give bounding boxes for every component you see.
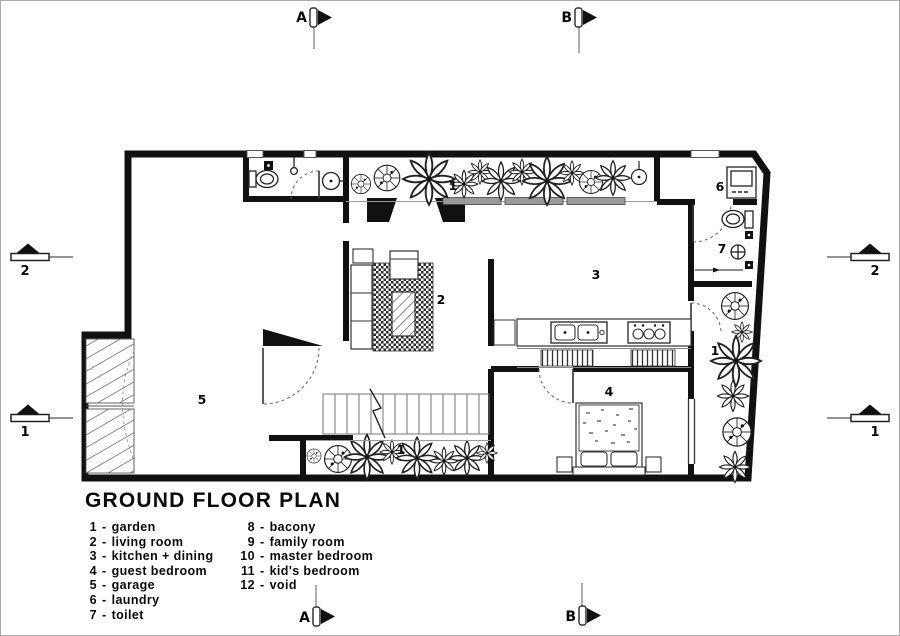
room-label-living-room: 2 (437, 292, 446, 307)
nightstand (557, 457, 572, 472)
legend-item: 11-kid's bedroom (233, 564, 373, 579)
svg-text:B: B (561, 10, 572, 26)
section-marker-b-top: B (561, 8, 597, 53)
legend-item: 6-laundry (85, 593, 233, 608)
room-label-laundry: 6 (716, 179, 725, 194)
room-label-kitchen-dining: 3 (592, 267, 601, 282)
elevation-arrow-icon (858, 405, 882, 415)
legend-item: 9-family room (233, 535, 373, 550)
svg-text:B: B (565, 609, 576, 625)
page-title: GROUND FLOOR PLAN (85, 489, 373, 513)
legend-item: 8-bacony (233, 520, 373, 535)
elevation-arrow-icon (16, 405, 40, 415)
room-label-garage: 5 (198, 392, 207, 407)
legend-item: 7-toilet (85, 608, 233, 623)
kitchen-counter (494, 319, 691, 346)
elevation-marker-1-right: 1 (827, 405, 889, 441)
coffee-table (392, 292, 415, 336)
armchair (390, 251, 418, 279)
section-arrow-icon (318, 10, 332, 25)
nightstand (646, 457, 661, 472)
section-arrow-icon (587, 608, 601, 623)
garage-door (86, 339, 134, 473)
legend-item: 4-guest bedroom (85, 564, 233, 579)
elevation-marker-1-left: 1 (11, 405, 73, 441)
svg-text:A: A (296, 10, 307, 26)
legend-column-2: 8-bacony 9-family room 10-master bedroom… (233, 520, 373, 622)
legend-column-1: 1-garden 2-living room 3-kitchen + dinin… (85, 520, 233, 622)
sofa-set (351, 249, 433, 351)
sofa (351, 265, 372, 349)
legend-item: 12-void (233, 578, 373, 593)
room-label-toilet: 7 (718, 241, 727, 256)
section-arrow-icon (583, 10, 597, 25)
svg-text:1: 1 (870, 425, 879, 440)
svg-text:2: 2 (20, 264, 29, 279)
legend-item: 2-living room (85, 535, 233, 550)
bed (557, 403, 661, 475)
legend-item: 10-master bedroom (233, 549, 373, 564)
section-marker-b-bottom: B (565, 583, 601, 625)
legend: GROUND FLOOR PLAN 1-garden 2-living room… (85, 489, 373, 622)
room-label-guest-bedroom: 4 (605, 384, 614, 399)
pillow (611, 452, 637, 466)
svg-text:2: 2 (870, 264, 879, 279)
stove-icon (628, 322, 670, 343)
elevation-marker-2-left: 2 (11, 244, 73, 280)
side-table (353, 249, 373, 263)
room-label-garden-top: 1 (449, 178, 458, 193)
section-marker-a-top: A (296, 8, 332, 49)
room-label-garden-right: 1 (711, 343, 720, 358)
bedroom-window (689, 399, 695, 464)
pillow (581, 452, 607, 466)
elevation-arrow-icon (16, 244, 40, 254)
dining-seats (517, 349, 691, 368)
drawing-sheet: 1 6 7 3 2 1 5 4 1 A B A B (0, 0, 900, 636)
stairs (323, 389, 489, 438)
bathroom-fixtures (249, 157, 345, 190)
elevation-marker-2-right: 2 (827, 244, 889, 280)
washing-machine-icon (727, 167, 756, 198)
headboard (573, 467, 645, 475)
legend-item: 1-garden (85, 520, 233, 535)
kitchen-sink-icon (551, 322, 607, 343)
room-label-garden-bottom: 1 (397, 442, 406, 457)
svg-text:1: 1 (20, 425, 29, 440)
elevation-arrow-icon (858, 244, 882, 254)
legend-item: 5-garage (85, 578, 233, 593)
legend-item: 3-kitchen + dining (85, 549, 233, 564)
